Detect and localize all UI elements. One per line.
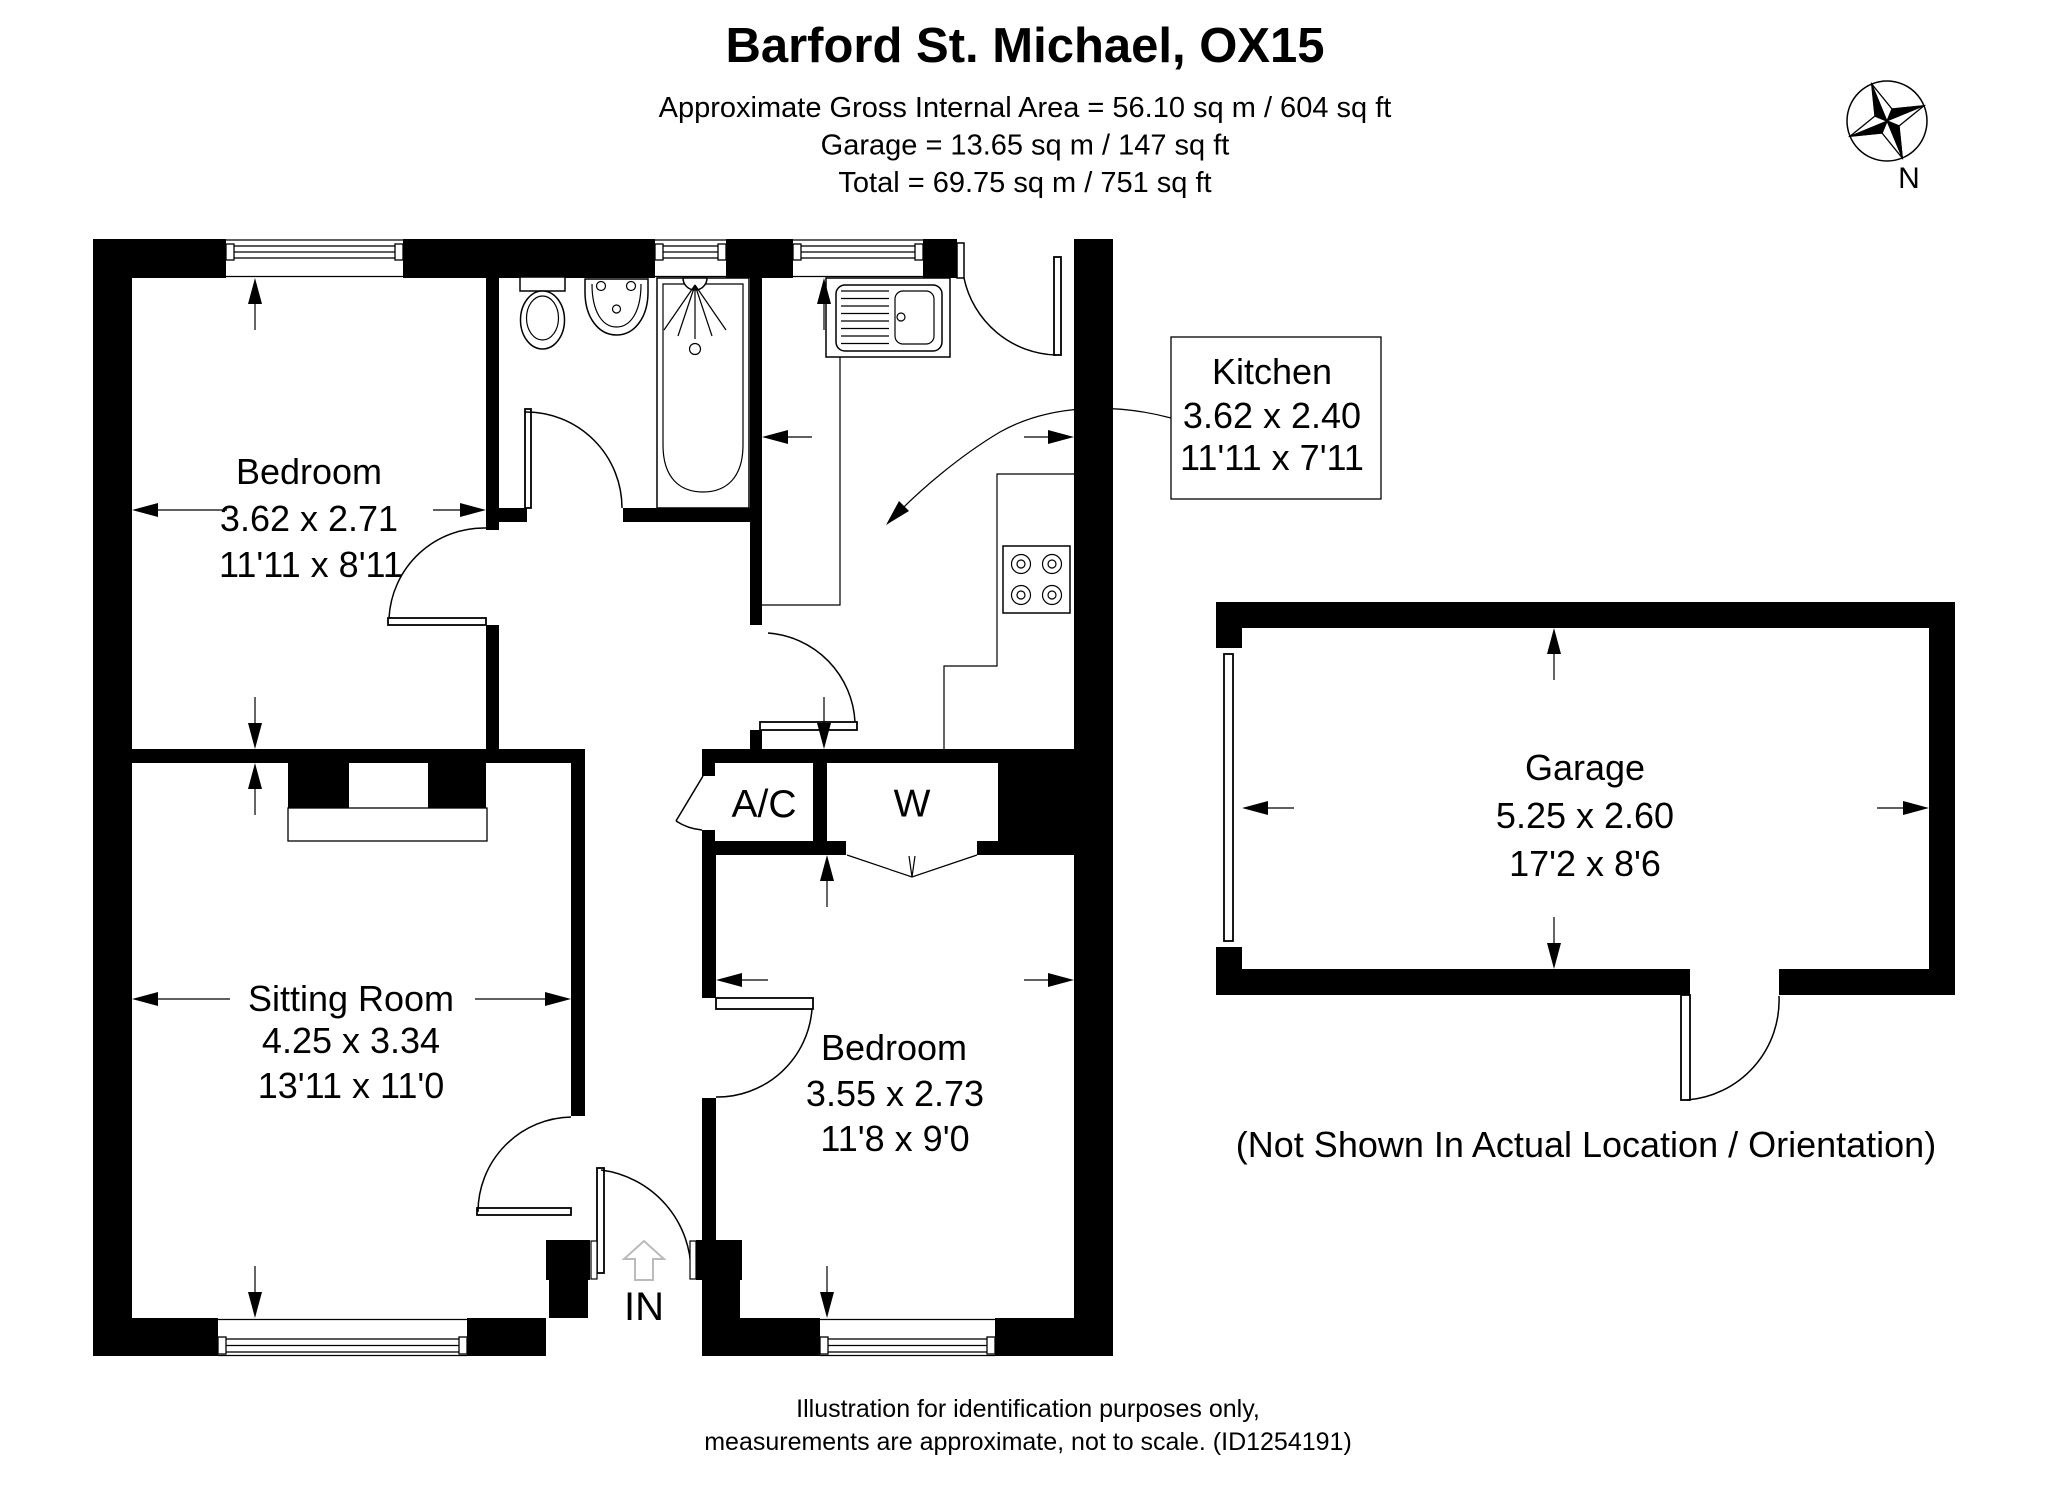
svg-text:N: N — [1898, 162, 1920, 195]
svg-text:Bedroom: Bedroom — [821, 1027, 967, 1068]
svg-text:Approximate Gross Internal Are: Approximate Gross Internal Area = 56.10 … — [659, 92, 1392, 124]
svg-text:measurements are approximate,: measurements are approximate, not to sca… — [704, 1428, 1352, 1456]
svg-text:4.25 x 3.34: 4.25 x 3.34 — [262, 1020, 440, 1061]
svg-text:A/C: A/C — [731, 783, 796, 826]
svg-text:11'11 x 7'11: 11'11 x 7'11 — [1180, 437, 1364, 478]
svg-text:11'8 x 9'0: 11'8 x 9'0 — [820, 1118, 969, 1159]
svg-text:3.55 x 2.73: 3.55 x 2.73 — [806, 1073, 984, 1114]
svg-text:11'11 x 8'11: 11'11 x 8'11 — [219, 544, 403, 585]
svg-text:Sitting Room: Sitting Room — [248, 978, 454, 1019]
svg-text:W: W — [894, 783, 931, 826]
svg-text:Total = 69.75 sq m / 751 sq ft: Total = 69.75 sq m / 751 sq ft — [838, 167, 1211, 199]
svg-text:Bedroom: Bedroom — [236, 451, 382, 492]
svg-text:(Not Shown In Actual Location: (Not Shown In Actual Location / Orientat… — [1236, 1124, 1936, 1165]
svg-text:Garage = 13.65 sq m / 147 sq f: Garage = 13.65 sq m / 147 sq ft — [821, 130, 1230, 162]
svg-text:Garage: Garage — [1525, 747, 1645, 788]
svg-text:Barford St. Michael, OX15: Barford St. Michael, OX15 — [725, 19, 1324, 73]
svg-text:Kitchen: Kitchen — [1212, 351, 1332, 392]
svg-text:Illustration for identificatio: Illustration for identification purposes… — [796, 1395, 1260, 1423]
svg-text:17'2 x 8'6: 17'2 x 8'6 — [1509, 843, 1661, 884]
svg-text:IN: IN — [624, 1285, 664, 1329]
svg-text:5.25 x 2.60: 5.25 x 2.60 — [1496, 795, 1674, 836]
svg-text:13'11 x 11'0: 13'11 x 11'0 — [258, 1065, 445, 1106]
svg-text:3.62 x 2.40: 3.62 x 2.40 — [1183, 395, 1361, 436]
svg-text:3.62 x 2.71: 3.62 x 2.71 — [220, 498, 398, 539]
